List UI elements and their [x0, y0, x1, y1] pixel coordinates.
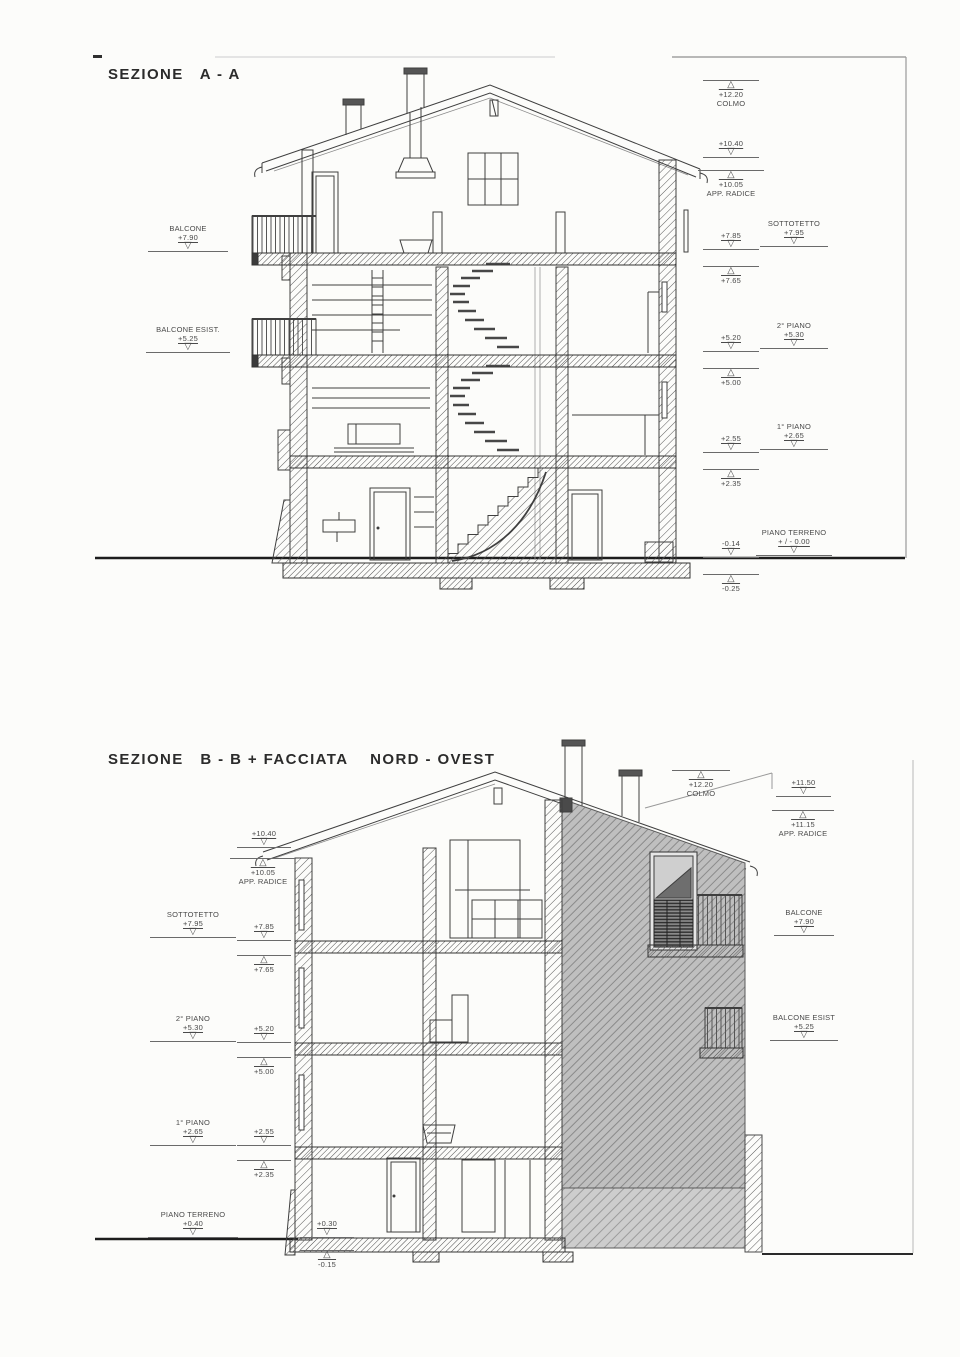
level-marker-piano-terreno: PIANO TERRENO + / - 0.00: [756, 528, 832, 556]
level-triangle-down-icon: [300, 1228, 354, 1237]
rooms-right-a: [568, 282, 673, 562]
title-section-b: SEZIONE B - B + FACCIATA NORD - OVEST: [108, 751, 495, 768]
level-triangle-down-icon: [237, 1136, 291, 1145]
level-triangle-down-icon: [148, 1228, 238, 1237]
level-marker-b-piano-terreno: PIANO TERRENO +0.40: [148, 1210, 238, 1238]
level-triangle-up-icon: [772, 811, 834, 820]
level-triangle-down-icon: [703, 342, 759, 351]
level-triangle-up-icon: [703, 81, 759, 90]
level-marker-255: +2.55: [703, 434, 759, 453]
level-triangle-up-icon: [703, 575, 759, 584]
level-marker-b-app-radice: +10.05 APP. RADICE: [230, 858, 296, 886]
level-triangle-down-icon: [774, 926, 834, 935]
level-marker-b-030: +0.30: [300, 1219, 354, 1238]
level-marker-b-sottotetto: SOTTOTETTO +7.95: [150, 910, 236, 938]
level-marker-minus014: -0.14: [703, 539, 759, 558]
level-triangle-down-icon: [703, 240, 759, 249]
stair-treads-flight1: [450, 366, 519, 450]
level-triangle-up-icon: [703, 267, 759, 276]
level-marker-b-765: +7.65: [237, 955, 291, 974]
level-marker-b-1150: +11.50: [776, 778, 831, 797]
level-triangle-up-icon: [237, 1161, 291, 1170]
level-triangle-down-icon: [760, 237, 828, 246]
level-marker-520: +5.20: [703, 333, 759, 352]
level-marker-sottotetto: SOTTOTETTO +7.95: [760, 219, 828, 247]
level-triangle-down-icon: [756, 546, 832, 555]
level-marker-minus025: -0.25: [703, 574, 759, 593]
section-drawings-art: [0, 0, 960, 1357]
level-triangle-down-icon: [776, 787, 831, 796]
level-triangle-down-icon: [760, 440, 828, 449]
rooms-b: [387, 840, 542, 1238]
level-marker-b-1040: +10.40: [237, 829, 291, 848]
level-marker-b-colmo: +12.20 COLMO: [672, 770, 730, 798]
drawing-sheet: SEZIONE A - A SEZIONE B - B + FACCIATA N…: [0, 0, 960, 1357]
level-triangle-down-icon: [150, 928, 236, 937]
level-triangle-up-icon: [698, 171, 764, 180]
facade-balcony-lower: [700, 1008, 743, 1058]
level-triangle-down-icon: [703, 548, 759, 557]
level-triangle-down-icon: [237, 931, 291, 940]
level-marker-balcone: BALCONE +7.90: [148, 224, 228, 252]
level-marker-b-piano2: 2° PIANO +5.30: [150, 1014, 236, 1042]
level-marker-app-radice: +10.05 APP. RADICE: [698, 170, 764, 198]
roof-a: [255, 85, 708, 183]
level-triangle-down-icon: [150, 1032, 236, 1041]
level-marker-b-500: +5.00: [237, 1057, 291, 1076]
rooms-left-a: [312, 270, 434, 560]
level-triangle-down-icon: [760, 339, 828, 348]
level-triangle-up-icon: [237, 956, 291, 965]
facade-nord-ovest: [560, 798, 762, 1252]
level-triangle-up-icon: [230, 859, 296, 868]
level-triangle-down-icon: [237, 838, 291, 847]
level-marker-b-minus015: -0.15: [300, 1250, 354, 1269]
level-marker-colmo: +12.20 COLMO: [703, 80, 759, 108]
level-marker-b-520: +5.20: [237, 1024, 291, 1043]
level-triangle-up-icon: [672, 771, 730, 780]
level-marker-piano2: 2° PIANO +5.30: [760, 321, 828, 349]
level-marker-balcone-esist: BALCONE ESIST. +5.25: [146, 325, 230, 353]
facade-window-shutter: [650, 852, 697, 950]
title-section-a: SEZIONE A - A: [108, 66, 241, 83]
level-marker-b-785: +7.85: [237, 922, 291, 941]
stair-treads-flight2: [450, 264, 519, 347]
level-triangle-up-icon: [703, 470, 759, 479]
level-triangle-up-icon: [237, 1058, 291, 1067]
stairs-a: [448, 264, 556, 563]
level-marker-500: +5.00: [703, 368, 759, 387]
level-triangle-up-icon: [703, 369, 759, 378]
level-marker-b-235: +2.35: [237, 1160, 291, 1179]
level-triangle-up-icon: [300, 1251, 354, 1260]
level-marker-b-1115: +11.15 APP. RADICE: [772, 810, 834, 838]
level-triangle-down-icon: [146, 343, 230, 352]
level-marker-b-balcone: BALCONE +7.90: [774, 908, 834, 936]
level-triangle-down-icon: [150, 1136, 236, 1145]
level-marker-765: +7.65: [703, 266, 759, 285]
attic-a: [312, 153, 688, 253]
level-triangle-down-icon: [237, 1033, 291, 1042]
level-marker-785: +7.85: [703, 231, 759, 250]
level-triangle-down-icon: [770, 1031, 838, 1040]
level-marker-b-piano1: 1° PIANO +2.65: [150, 1118, 236, 1146]
level-triangle-down-icon: [703, 443, 759, 452]
level-marker-piano1: 1° PIANO +2.65: [760, 422, 828, 450]
level-marker-1040: +10.40: [703, 139, 759, 158]
level-marker-b-255: +2.55: [237, 1127, 291, 1146]
level-triangle-down-icon: [148, 242, 228, 251]
level-marker-235: +2.35: [703, 469, 759, 488]
level-triangle-down-icon: [703, 148, 759, 157]
level-marker-b-balcone-esist: BALCONE ESIST +5.25: [770, 1013, 838, 1041]
